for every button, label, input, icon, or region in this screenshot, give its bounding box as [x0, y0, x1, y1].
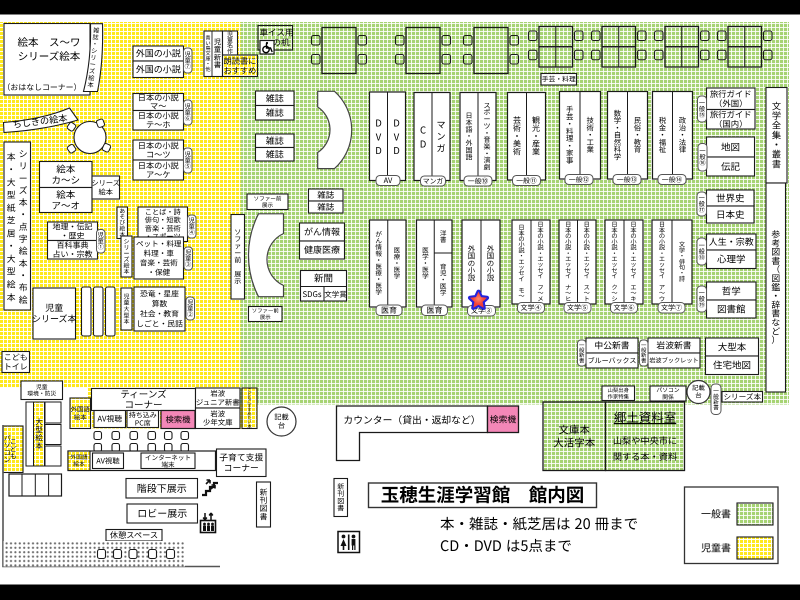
svg-text:AV視聴: AV視聴: [97, 414, 122, 425]
svg-text:日本の小説・エッセイ エ～キ: 日本の小説・エッセイ エ～キ: [630, 220, 637, 303]
svg-text:児童大型本: 児童大型本: [123, 291, 129, 325]
svg-text:児童①: 児童①: [98, 230, 104, 251]
svg-text:洋書: 洋書: [440, 227, 447, 243]
svg-text:パソコン: パソコン: [4, 433, 11, 464]
svg-text:絵本: 絵本: [73, 459, 85, 468]
svg-text:芸術・美術: 芸術・美術: [513, 115, 521, 157]
svg-text:占い・宗教: 占い・宗教: [53, 249, 93, 260]
svg-text:日本史: 日本史: [716, 207, 745, 221]
svg-text:一般⑬: 一般⑬: [617, 174, 638, 184]
svg-text:一般新書: 一般新書: [641, 341, 647, 364]
svg-text:あそび絵本: あそび絵本: [119, 206, 125, 239]
svg-text:外国の小説: 外国の小説: [136, 47, 181, 60]
svg-text:マンガ: マンガ: [436, 118, 445, 154]
svg-text:医学・医学: 医学・医学: [422, 245, 429, 281]
svg-text:一般⑯: 一般⑯: [699, 146, 706, 167]
svg-text:一般⑪: 一般⑪: [516, 175, 537, 185]
svg-text:健康医療: 健康医療: [304, 243, 340, 256]
svg-text:カ～シ: カ～シ: [51, 172, 80, 186]
svg-text:こどもにすすめたい本: こどもにすすめたい本: [247, 387, 252, 430]
svg-text:ジュニア新書: ジュニア新書: [196, 397, 240, 408]
svg-text:青い鳥文庫・他: 青い鳥文庫・他: [205, 35, 210, 73]
svg-text:（外国）: （外国）: [714, 97, 748, 109]
svg-text:・保健: ・保健: [147, 267, 170, 278]
svg-text:医育: 医育: [427, 305, 443, 316]
svg-text:絵本 ス～ワ: 絵本 ス～ワ: [18, 35, 81, 50]
svg-text:PC席: PC席: [135, 418, 151, 428]
svg-text:外国の小説: 外国の小説: [136, 62, 181, 75]
svg-text:雑誌: 雑誌: [266, 106, 284, 119]
svg-text:民俗・教育: 民俗・教育: [634, 115, 642, 155]
svg-text:AV視聴: AV視聴: [96, 456, 120, 467]
svg-text:岩波新書: 岩波新書: [656, 339, 691, 352]
svg-text:雑誌: 雑誌: [266, 147, 284, 160]
svg-text:観光・産業: 観光・産業: [532, 115, 540, 157]
svg-text:文学⑥: 文学⑥: [614, 303, 635, 313]
svg-text:ア～ケ: ア～ケ: [146, 168, 171, 180]
svg-text:雑誌: 雑誌: [266, 91, 284, 104]
svg-text:税金・福祉: 税金・福祉: [659, 115, 667, 155]
svg-text:ロビー展示: ロビー展示: [137, 505, 187, 520]
svg-text:シリーズ絵本: シリーズ絵本: [18, 49, 81, 64]
svg-text:一般新書: 一般新書: [713, 386, 719, 412]
svg-text:日本の小説・エッセイ フ～メ: 日本の小説・エッセイ フ～メ: [537, 220, 544, 303]
svg-text:の机: の机: [272, 37, 290, 49]
svg-text:一般⑮: 一般⑮: [699, 98, 706, 119]
svg-text:関係: 関係: [662, 392, 674, 401]
svg-text:がん情報・医療・医学: がん情報・医療・医学: [375, 229, 382, 297]
svg-text:児童書: 児童書: [701, 540, 731, 555]
svg-text:展示: 展示: [262, 201, 274, 209]
svg-text:文学・俳句・詩: 文学・俳句・詩: [679, 240, 685, 283]
svg-text:テ～ホ: テ～ホ: [146, 119, 171, 131]
svg-text:台: 台: [695, 391, 702, 400]
svg-text:日本の小説・エッセイ モ～: 日本の小説・エッセイ モ～: [518, 223, 525, 300]
svg-text:シリーズ本: シリーズ本: [723, 391, 761, 402]
svg-text:文学賞: 文学賞: [324, 289, 346, 300]
svg-text:児童②: 児童②: [187, 298, 193, 319]
svg-text:SDGs: SDGs: [302, 289, 321, 300]
svg-text:おすすめ: おすすめ: [224, 64, 257, 76]
svg-text:雑誌: 雑誌: [317, 189, 335, 201]
svg-text:がん情報: がん情報: [304, 225, 340, 238]
svg-text:雑誌: 雑誌: [317, 201, 335, 213]
svg-text:少年文庫: 少年文庫: [203, 417, 233, 428]
svg-text:手芸・料理: 手芸・料理: [542, 74, 576, 84]
svg-text:育児・医学: 育児・医学: [440, 261, 447, 297]
svg-text:端末: 端末: [161, 459, 175, 469]
svg-text:一般⑱: 一般⑱: [699, 241, 706, 262]
svg-text:玉穂生涯学習館 館内図: 玉穂生涯学習館 館内図: [381, 482, 585, 508]
svg-text:DVD: DVD: [393, 116, 400, 158]
svg-text:コ～ツ: コ～ツ: [146, 148, 171, 160]
svg-text:政治・法律: 政治・法律: [679, 115, 687, 155]
svg-text:児童⑦: 児童⑦: [185, 50, 191, 71]
svg-text:文学⑦: 文学⑦: [661, 303, 682, 313]
svg-text:一般⑰: 一般⑰: [699, 193, 706, 214]
svg-text:一般⑭: 一般⑭: [662, 174, 683, 184]
svg-text:外国の小説: 外国の小説: [487, 243, 495, 283]
svg-text:図書館: 図書館: [717, 301, 746, 315]
svg-text:外国の小説: 外国の小説: [468, 243, 476, 283]
svg-text:しごと・民話: しごと・民話: [136, 319, 183, 330]
svg-text:児童④: 児童④: [189, 216, 195, 237]
svg-text:大型絵本: 大型絵本: [35, 417, 43, 452]
svg-text:伝記: 伝記: [721, 159, 741, 173]
svg-text:コーナー: コーナー: [124, 397, 162, 411]
svg-text:文学⑤: 文学⑤: [567, 303, 588, 313]
svg-text:医療・医学: 医療・医学: [394, 245, 401, 281]
svg-text:新刊図書: 新刊図書: [260, 487, 268, 523]
svg-text:環境・防災: 環境・防災: [27, 389, 56, 398]
svg-text:数学・自然科学: 数学・自然科学: [614, 108, 622, 163]
svg-text:CD・DVD は5点まで: CD・DVD は5点まで: [440, 535, 572, 556]
svg-text:検索機: 検索機: [165, 413, 191, 425]
svg-text:参考図書（図鑑・辞書など）: 参考図書（図鑑・辞書など）: [771, 228, 780, 347]
svg-text:中公新書: 中公新書: [594, 339, 629, 352]
svg-text:児童③: 児童③: [185, 248, 191, 269]
svg-text:（国内）: （国内）: [714, 118, 748, 130]
svg-text:大型本: 大型本: [718, 339, 747, 353]
svg-text:心理学: 心理学: [717, 252, 746, 266]
svg-text:哲学: 哲学: [722, 283, 741, 297]
svg-text:医育: 医育: [381, 305, 397, 316]
svg-text:シリーズ本: シリーズ本: [32, 312, 77, 325]
svg-text:ブルーバックス: ブルーバックス: [588, 356, 637, 366]
svg-text:日本の小説・エッセイ ク～シ: 日本の小説・エッセイ ク～シ: [611, 220, 618, 303]
svg-text:手芸・料理・家事: 手芸・料理・家事: [566, 104, 574, 166]
svg-text:階段下展示: 階段下展示: [137, 480, 187, 495]
svg-text:児童⑤: 児童⑤: [185, 150, 191, 171]
svg-text:一般新書: 一般新書: [579, 341, 585, 364]
svg-text:CD: CD: [420, 122, 427, 150]
svg-text:文学全集・叢書: 文学全集・叢書: [772, 98, 781, 170]
svg-text:文学④: 文学④: [521, 303, 542, 313]
svg-text:世界史: 世界史: [716, 190, 745, 204]
svg-text:シリーズ絵本: シリーズ絵本: [123, 236, 129, 275]
svg-text:こども: こども: [10, 436, 17, 460]
svg-text:雑誌: 雑誌: [266, 134, 284, 147]
svg-text:日本の小説・エッセイ ナ～ヒ: 日本の小説・エッセイ ナ～ヒ: [565, 220, 572, 303]
svg-text:技術・工業: 技術・工業: [587, 115, 595, 155]
svg-text:本・大型紙芝居・大型絵本: 本・大型紙芝居・大型絵本: [7, 150, 16, 303]
svg-text:一般書: 一般書: [701, 506, 731, 521]
svg-text:台: 台: [278, 421, 285, 431]
svg-text:ア～オ: ア～オ: [51, 198, 80, 212]
svg-text:絵本: 絵本: [99, 187, 113, 197]
svg-text:シリーズ本・点字絵本・布絵: シリーズ本・点字絵本・布絵: [19, 147, 28, 306]
svg-text:一般⑫: 一般⑫: [569, 174, 590, 184]
svg-text:日本の小説・エッセイ ア～ウ: 日本の小説・エッセイ ア～ウ: [659, 220, 666, 303]
svg-text:スポーツ・音楽・演劇: スポーツ・音楽・演劇: [484, 101, 491, 173]
svg-text:日本の小説・エッセイ ス～ト: 日本の小説・エッセイ ス～ト: [584, 220, 591, 303]
svg-text:関する本・資料: 関する本・資料: [613, 449, 677, 463]
svg-text:作家特集: 作家特集: [607, 392, 629, 400]
svg-text:児童⑥: 児童⑥: [185, 102, 191, 123]
svg-text:トイレ: トイレ: [4, 362, 28, 373]
svg-text:休憩スペース: 休憩スペース: [110, 529, 158, 541]
svg-text:新刊図書: 新刊図書: [337, 482, 344, 513]
svg-text:地図: 地図: [721, 139, 740, 153]
svg-text:カウンター（貸出・返却など）: カウンター（貸出・返却など）: [343, 413, 480, 427]
svg-text:児童名作: 児童名作: [227, 29, 233, 55]
svg-text:検索機: 検索機: [490, 412, 517, 425]
svg-text:一般⑩: 一般⑩: [468, 175, 489, 185]
svg-text:郷土資料室: 郷土資料室: [614, 407, 677, 426]
svg-text:住宅地図: 住宅地図: [713, 358, 751, 372]
svg-text:コーナー: コーナー: [224, 461, 259, 474]
svg-text:本・雑誌・紙芝居は 20 冊まで: 本・雑誌・紙芝居は 20 冊まで: [440, 513, 638, 534]
svg-text:一般⑲: 一般⑲: [699, 288, 706, 309]
svg-text:岩波ブックレット: 岩波ブックレット: [649, 356, 699, 365]
svg-text:展示: 展示: [260, 313, 271, 321]
svg-text:児童新書: 児童新書: [214, 36, 222, 70]
svg-text:人生・宗教: 人生・宗教: [709, 235, 754, 248]
svg-text:（おはなしコーナー）: （おはなしコーナー）: [3, 82, 82, 93]
svg-text:大活字本: 大活字本: [553, 435, 595, 450]
svg-text:山梨や中央市に: 山梨や中央市に: [613, 433, 677, 447]
svg-text:ソファー前 展示: ソファー前 展示: [234, 228, 241, 287]
svg-text:DVD: DVD: [375, 116, 382, 158]
svg-text:マンガ: マンガ: [423, 175, 444, 185]
svg-text:絵本: 絵本: [74, 412, 87, 421]
svg-text:AV: AV: [384, 175, 393, 186]
svg-text:日本語・外国語: 日本語・外国語: [466, 111, 473, 162]
svg-text:新聞: 新聞: [314, 271, 333, 285]
